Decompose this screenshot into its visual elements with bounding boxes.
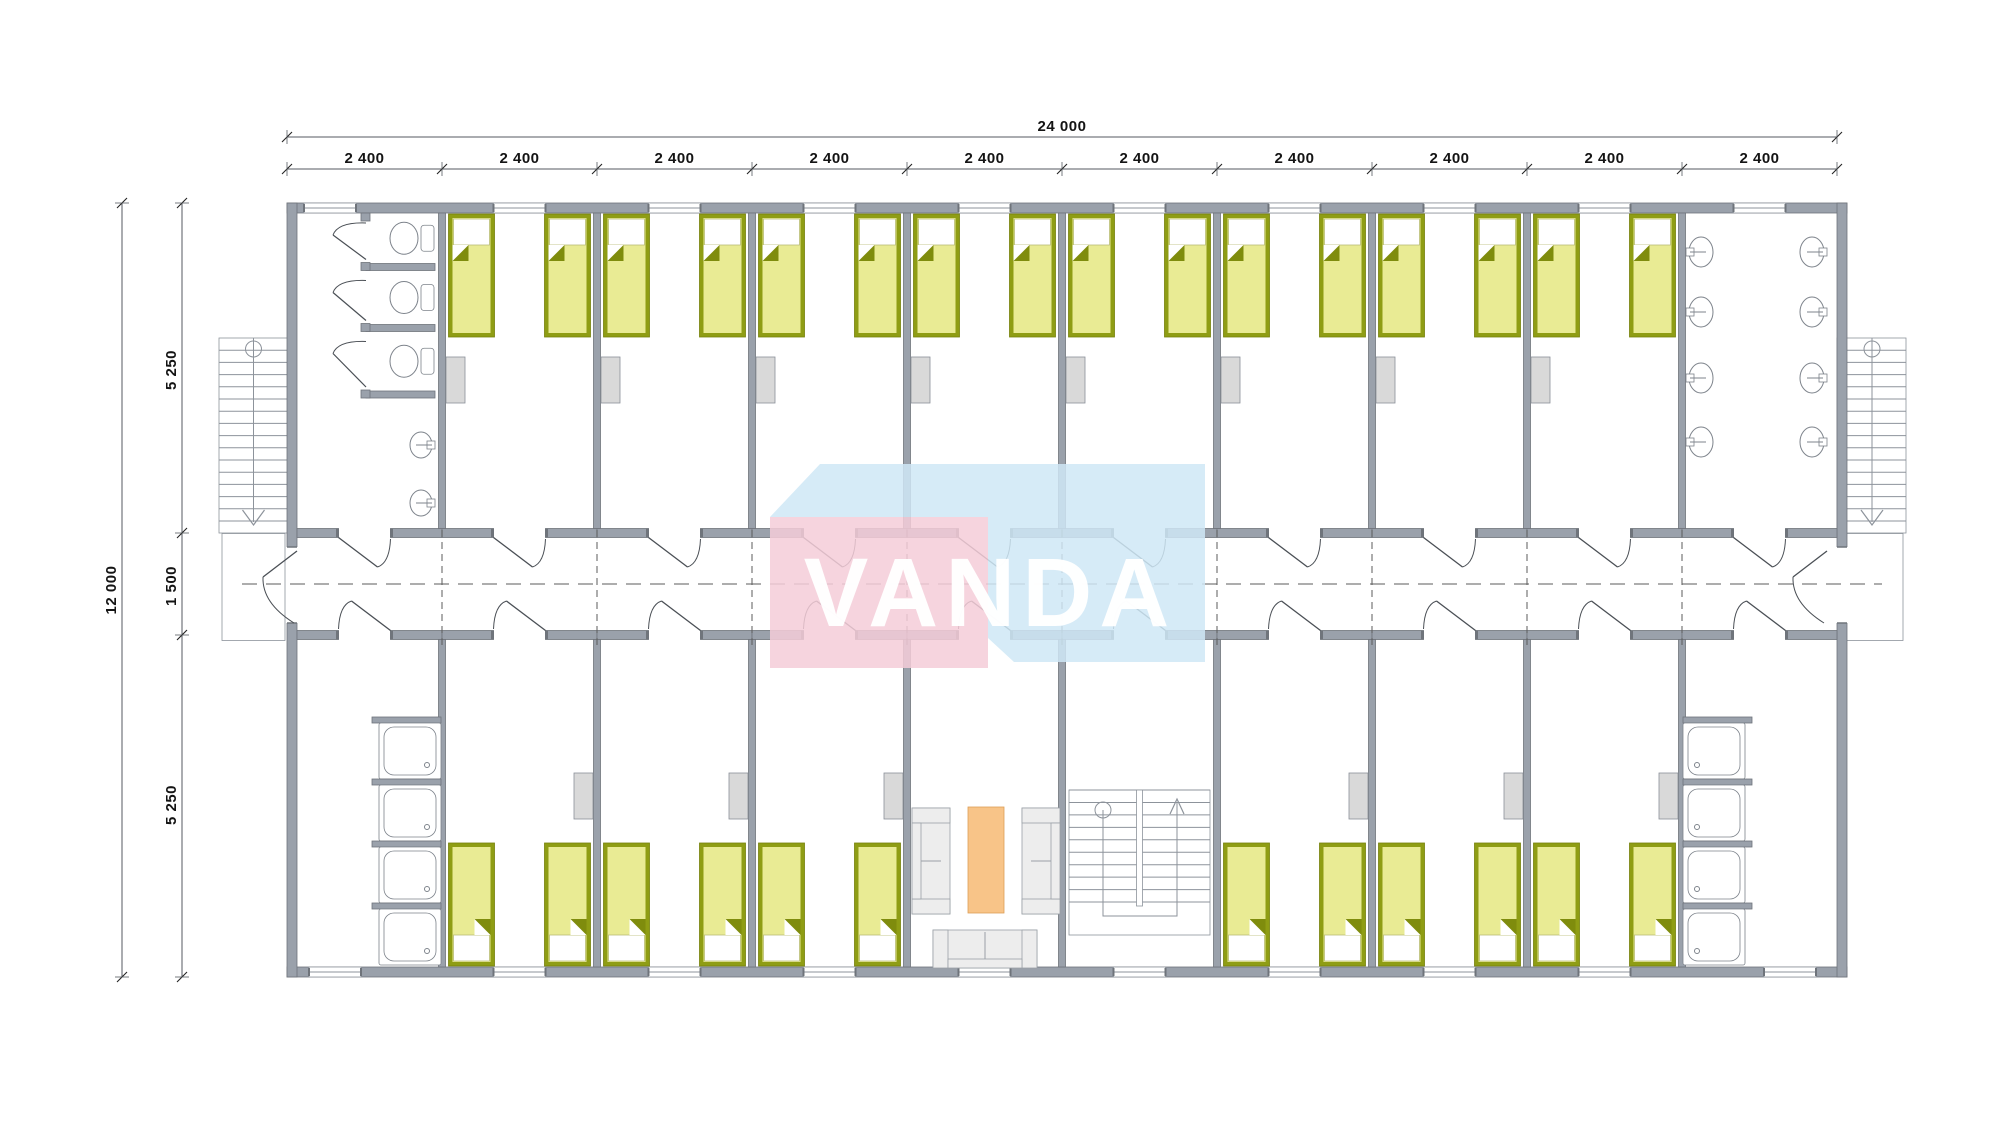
bed-pillow [919,219,955,245]
bed [1165,214,1211,337]
bed-pillow [1384,219,1420,245]
stall-front-post [361,324,370,332]
dim-top-segment: 2 400 [1739,150,1779,167]
dim-top-segment: 2 400 [1119,150,1159,167]
toilet-tank [421,285,434,311]
stall-door-arc [333,223,366,235]
shower [1683,847,1745,903]
door-jamb [545,631,548,640]
corridor-wall-segment [546,529,598,538]
partition-wall-top [1214,213,1221,529]
bed [1379,843,1425,966]
corridor-wall-segment [1217,529,1269,538]
door-swing-arc [688,539,701,567]
locker [1659,773,1678,819]
bed-pillow [1325,935,1361,961]
dim-top-total: 24 000 [1038,118,1087,135]
shower-divider-wall [372,779,441,785]
bed-pillow [1635,935,1671,961]
bed-pillow [1170,219,1206,245]
bed [1320,843,1366,966]
partition-wall-bottom [594,640,601,968]
bed [1534,843,1580,966]
urinal [410,432,435,458]
sofa-arm [1022,930,1037,968]
logo-text: VANDA [804,538,1177,647]
sofa-arm [912,899,950,914]
dim-top-segment: 2 400 [1274,150,1314,167]
locker [1349,773,1368,819]
door-swing-arc [1734,601,1747,629]
door-jamb [700,529,703,538]
corridor-wall-segment [1631,529,1683,538]
shower-divider-wall [372,717,441,723]
bed-pillow [550,219,586,245]
urinal [410,490,435,516]
corridor-wall-segment [701,529,753,538]
locker [756,357,775,403]
dim-top-segment: 2 400 [654,150,694,167]
locker [911,357,930,403]
bed-pillow [550,935,586,961]
door-swing-arc [1618,539,1631,567]
bed [1475,843,1521,966]
shower-divider-wall [1683,717,1752,723]
sofa-arm [1022,808,1060,823]
door-leaf [1282,601,1321,631]
door-jamb [1630,529,1633,538]
shower-divider-wall [372,903,441,909]
wc-stall [333,341,434,387]
door-swing-arc [1424,601,1437,629]
stall-front-post [361,213,370,221]
stall-divider-wall [366,391,435,398]
entry-opening-right [1836,547,1848,623]
stall-front-post [361,390,370,398]
dim-top-segment: 2 400 [1429,150,1469,167]
shower [379,847,441,903]
partition-wall-top [439,213,446,529]
dim-left-segment-upper: 5 250 [163,350,180,390]
shower-divider-wall [372,841,441,847]
bed-pillow [1539,935,1575,961]
wash-basin [1800,363,1827,393]
sofa [933,930,1037,968]
door-jamb [1266,529,1269,538]
corridor-wall-segment [1476,631,1528,640]
door-jamb [700,631,703,640]
bed-pillow [1635,219,1671,245]
locker [729,773,748,819]
door-jamb [336,631,339,640]
partition-wall-top [594,213,601,529]
dim-left-segment-lower: 5 250 [163,785,180,825]
corridor-wall-segment [442,529,494,538]
shower-tray [1683,723,1745,779]
door-jamb [390,529,393,538]
locker [574,773,593,819]
shower-tray [379,723,441,779]
partition-wall-top [1524,213,1531,529]
bed [1224,214,1270,337]
door-jamb [1731,529,1734,538]
door-jamb [390,631,393,640]
bed [855,214,901,337]
door-jamb [1785,631,1788,640]
door-leaf [507,601,546,631]
screenshot-root: { "dimensions": { "top": { "total": "24 … [0,0,2000,1131]
door-jamb [1320,529,1323,538]
shower [1683,909,1745,965]
corridor-wall-segment [1527,631,1579,640]
sofa-back [912,823,921,899]
sofa-arm [912,808,950,823]
bed-pillow [454,219,490,245]
toilet-bowl [390,222,418,254]
stall-door-arc [333,341,366,353]
bed-pillow [1480,935,1516,961]
door-jamb [491,631,494,640]
bed [604,214,650,337]
corridor-wall-segment [1321,529,1373,538]
corridor-wall-segment [1682,631,1734,640]
partition-wall-top [1679,213,1686,529]
door-swing-arc [1463,539,1476,567]
bed-pillow [764,935,800,961]
toilet-bowl [390,345,418,377]
bed [759,843,805,966]
dim-left-segment-corridor: 1 500 [163,566,180,606]
shower-divider-wall [1683,841,1752,847]
bed [1379,214,1425,337]
bed-pillow [1325,219,1361,245]
bed [449,843,495,966]
stall-door-leaf [333,235,366,260]
locker [1221,357,1240,403]
door-jamb [336,529,339,538]
bed-pillow [454,935,490,961]
dim-top-segment: 2 400 [344,150,384,167]
corridor-wall-segment [1786,631,1838,640]
door-leaf [1747,601,1786,631]
door-jamb [646,631,649,640]
entry-landing [222,534,285,641]
door-leaf [1269,538,1308,568]
bed-pillow [860,935,896,961]
corridor-wall-segment [1631,631,1683,640]
door-leaf [662,601,701,631]
dim-top-segment: 2 400 [499,150,539,167]
corridor-wall-segment [546,631,598,640]
stall-door-arc [333,280,366,292]
shower [1683,785,1745,841]
corridor-wall-segment [1372,631,1424,640]
bed-pillow [1539,219,1575,245]
bed-pillow [1015,219,1051,245]
dim-top-segment: 2 400 [1584,150,1624,167]
floor-plan-svg: 24 000 12 000 5 250 1 500 5 250 2 4002 4… [0,0,2000,1131]
locker [601,357,620,403]
bed-pillow [705,935,741,961]
bed [604,843,650,966]
shower [379,723,441,779]
door-jamb [1421,631,1424,640]
door-swing-arc [1773,539,1786,567]
corridor-wall-segment [1682,529,1734,538]
shower-tray [1683,785,1745,841]
corridor-wall-segment [1476,529,1528,538]
toilet-tank [421,348,434,374]
bed [700,214,746,337]
stall-door-leaf [333,354,366,388]
locker [1066,357,1085,403]
locker [1504,773,1523,819]
sofa-arm [1022,899,1060,914]
shower-tray [379,785,441,841]
sofa-back [1051,823,1060,899]
bed [545,214,591,337]
wash-basin [1686,363,1713,393]
shower [379,785,441,841]
partition-wall-bottom [1369,640,1376,968]
sofa [1022,808,1060,914]
door-leaf [1592,601,1631,631]
door-leaf [1424,538,1463,568]
door-jamb [646,529,649,538]
bed-pillow [860,219,896,245]
door-leaf [1734,538,1773,568]
door-jamb [1266,631,1269,640]
sofa [912,808,950,914]
locker [1376,357,1395,403]
corridor-wall-segment [442,631,494,640]
shower [1683,723,1745,779]
bed-pillow [1074,219,1110,245]
bed [914,214,960,337]
shower-divider-wall [1683,779,1752,785]
door-jamb [545,529,548,538]
door-leaf [494,538,533,568]
dim-top-segment: 2 400 [809,150,849,167]
bed-pillow [705,219,741,245]
corridor-wall-segment [297,529,339,538]
bed [1534,214,1580,337]
door-swing-arc [494,601,507,629]
door-jamb [1785,529,1788,538]
corridor-wall-segment [597,529,649,538]
corridor-wall-segment [297,631,339,640]
external-stair-left [219,338,288,641]
partition-wall-bottom [904,640,911,968]
sofa-arm [933,930,948,968]
corridor-wall-segment [597,631,649,640]
bed [1475,214,1521,337]
bed-pillow [609,935,645,961]
partition-wall-bottom [749,640,756,968]
door-swing-arc [533,539,546,567]
watermark-layer: VANDA [770,464,1205,668]
corridor-wall-segment [391,631,443,640]
bed-pillow [609,219,645,245]
sofa-back [948,959,1022,968]
partition-wall-bottom [1059,640,1066,968]
wash-basin [1800,237,1827,267]
toilet-bowl [390,282,418,314]
partition-wall-bottom [1214,640,1221,968]
door-swing-arc [1308,539,1321,567]
corridor-wall-segment [1527,529,1579,538]
wash-basin [1686,297,1713,327]
wash-basin [1800,427,1827,457]
door-jamb [1475,529,1478,538]
bed [1224,843,1270,966]
stall-front-post [361,263,370,271]
internal-stair [1069,790,1210,935]
bed [1010,214,1056,337]
corridor-wall-segment [391,529,443,538]
bed-pillow [1229,935,1265,961]
entry-door-leaf [1793,551,1827,577]
door-jamb [1320,631,1323,640]
entry-landing [1840,534,1903,641]
bed [1630,843,1676,966]
partition-wall-top [1369,213,1376,529]
wash-basin [1686,237,1713,267]
bed-pillow [1480,219,1516,245]
toilet-tank [421,225,434,251]
corridor-wall-segment [1372,529,1424,538]
door-jamb [1475,631,1478,640]
door-leaf [352,601,391,631]
shower-tray [379,909,441,965]
door-swing-arc [1269,601,1282,629]
bed [1630,214,1676,337]
door-jamb [1576,631,1579,640]
corridor-wall-segment [701,631,753,640]
shower-tray [1683,909,1745,965]
stall-divider-wall [366,264,435,271]
dim-top-segment: 2 400 [964,150,1004,167]
bed [1069,214,1115,337]
door-swing-arc [378,539,391,567]
door-leaf [649,538,688,568]
door-jamb [1421,529,1424,538]
stair-rail [1137,790,1143,906]
door-jamb [1731,631,1734,640]
partition-wall-top [749,213,756,529]
door-jamb [1630,631,1633,640]
door-leaf [1579,538,1618,568]
bed [449,214,495,337]
shower-tray [1683,847,1745,903]
partition-wall-bottom [1524,640,1531,968]
dim-left-total: 12 000 [103,566,120,615]
bed [700,843,746,966]
bed [1320,214,1366,337]
corridor-wall-segment [1321,631,1373,640]
bed-pillow [1229,219,1265,245]
wc-stall [333,222,434,259]
door-swing-arc [649,601,662,629]
locker [1531,357,1550,403]
bed-pillow [1384,935,1420,961]
bed [855,843,901,966]
door-jamb [1576,529,1579,538]
locker [446,357,465,403]
door-leaf [1437,601,1476,631]
bed [545,843,591,966]
shower-tray [379,847,441,903]
shower [379,909,441,965]
door-leaf [339,538,378,568]
corridor-wall-segment [1217,631,1269,640]
stall-divider-wall [366,325,435,332]
wash-basin [1800,297,1827,327]
bed-pillow [764,219,800,245]
floor-plan-canvas: 24 000 12 000 5 250 1 500 5 250 2 4002 4… [0,0,2000,1131]
wc-stall [333,280,434,320]
lounge [912,807,1060,968]
coffee-table [968,807,1004,913]
locker [884,773,903,819]
wash-basin [1686,427,1713,457]
corridor-wall-segment [1786,529,1838,538]
bed [759,214,805,337]
door-swing-arc [339,601,352,629]
stall-door-leaf [333,293,366,321]
shower-divider-wall [1683,903,1752,909]
door-swing-arc [1579,601,1592,629]
door-jamb [491,529,494,538]
